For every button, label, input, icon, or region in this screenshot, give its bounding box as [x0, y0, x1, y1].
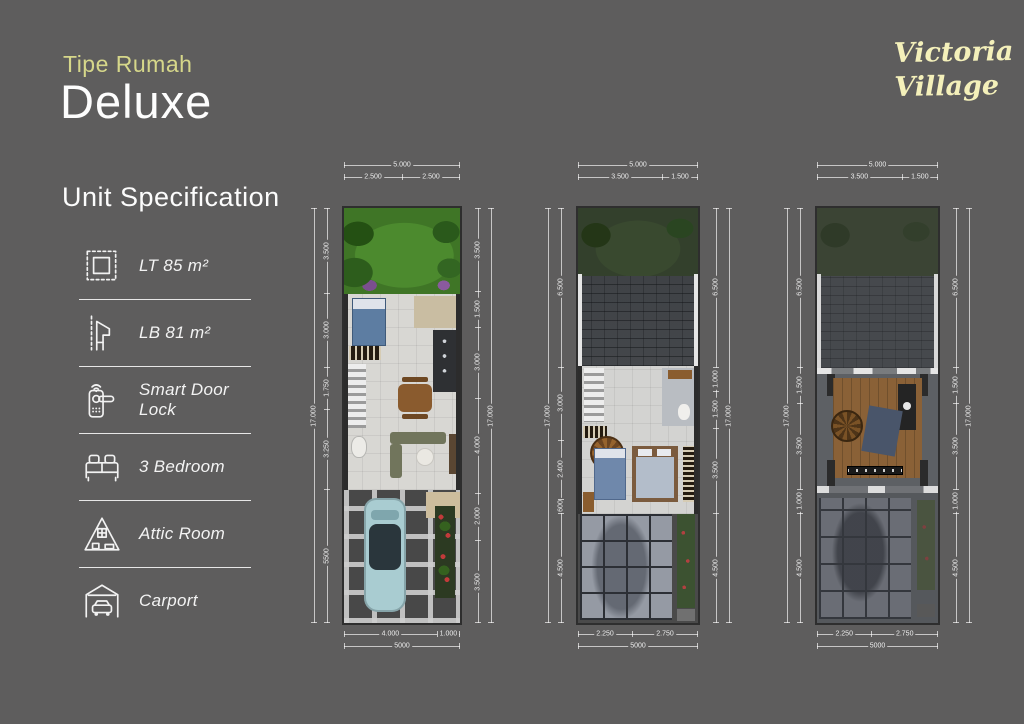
- car: [364, 498, 406, 612]
- planter: [917, 500, 935, 590]
- toilet: [678, 404, 690, 420]
- dim-right-segments: 3.5001.5003.0004.0002.0003.500: [472, 208, 483, 623]
- dim-top-total: 5.000: [578, 160, 698, 170]
- spec-row-building-area: LB 81 m²: [79, 300, 251, 367]
- floor-plan-attic: 5.000 3.5001.500 17.000 6.5001.5003.5001…: [781, 160, 974, 655]
- dim-top-segments: 3.5001.500: [578, 172, 698, 182]
- spec-row-land-area: LT 85 m²: [79, 233, 251, 300]
- brand-line-2: Village: [894, 69, 1014, 105]
- dim-left-total: 17.000: [308, 208, 319, 623]
- dim-top-total: 5.000: [344, 160, 460, 170]
- attic-icon: [79, 513, 125, 555]
- spec-label: Attic Room: [139, 524, 225, 544]
- section-heading: Unit Specification: [62, 182, 280, 213]
- spec-row-carport: Carport: [79, 568, 251, 634]
- garden-dim: [578, 208, 698, 276]
- brand-line-1: Victoria: [893, 35, 1013, 71]
- bed: [352, 298, 386, 346]
- dim-left-segments: 3.5003.0001.7503.2505500: [321, 208, 332, 623]
- dim-bottom-total: 5000: [817, 641, 938, 651]
- staircase: [348, 364, 366, 428]
- dim-bottom-total: 5000: [344, 641, 460, 651]
- spec-row-smart-door-lock: Smart Door Lock: [79, 367, 251, 434]
- toilet: [351, 436, 367, 458]
- ground-floor-rendering: [344, 208, 460, 623]
- spec-label: LB 81 m²: [139, 323, 210, 343]
- land-area-icon: [79, 245, 125, 287]
- staircase: [584, 368, 604, 422]
- garden-dim: [817, 208, 938, 276]
- dim-left-total: 17.000: [781, 208, 792, 623]
- planter: [435, 506, 455, 598]
- spec-row-bedroom: 3 Bedroom: [79, 434, 251, 501]
- dim-top-total: 5.000: [817, 160, 938, 170]
- roof-tiles: [578, 276, 698, 366]
- smart-door-lock-icon: [79, 379, 125, 421]
- dim-right-total: 17.000: [723, 208, 734, 623]
- dining-table: [398, 384, 432, 412]
- dim-right-segments: 6.5001.5003.5001.0004.500: [950, 208, 961, 623]
- wardrobe: [349, 346, 381, 360]
- skylight-grid: [580, 514, 672, 620]
- brand-logo: Victoria Village: [893, 35, 1014, 105]
- spec-list: LT 85 m² LB 81 m²: [79, 233, 251, 634]
- floor-plan-ground: 5.000 2.5002.500 17.000 3.5003.0001.7503…: [308, 160, 496, 655]
- roof-tiles: [817, 276, 938, 368]
- spec-label: 3 Bedroom: [139, 457, 225, 477]
- building-area-icon: [79, 312, 125, 354]
- skylight-grid: [819, 498, 911, 619]
- bed-master: [632, 446, 678, 502]
- spec-row-attic: Attic Room: [79, 501, 251, 568]
- spec-label: Smart Door Lock: [139, 380, 251, 419]
- garden: [344, 208, 460, 294]
- dim-bottom-total: 5000: [578, 641, 698, 651]
- dim-left-segments: 6.5003.0002.4006004.500: [555, 208, 566, 623]
- page-title: Deluxe: [60, 74, 212, 129]
- kitchen-counter: [433, 330, 456, 392]
- wardrobe: [683, 446, 694, 502]
- dim-right-total: 17.000: [485, 208, 496, 623]
- floor-plan-second: 5.000 3.5001.500 17.000 6.5003.0002.4006…: [542, 160, 734, 655]
- dim-bottom-segments: 4.0001.000: [344, 629, 460, 639]
- dim-right-total: 17.000: [963, 208, 974, 623]
- sofa: [390, 432, 446, 444]
- bed-small: [594, 448, 626, 500]
- spec-label: LT 85 m²: [139, 256, 208, 276]
- carport-icon: [79, 580, 125, 622]
- bed-icon: [79, 446, 125, 488]
- attic-floor-rendering: [817, 208, 938, 623]
- dim-top-segments: 2.5002.500: [344, 172, 460, 182]
- dim-bottom-segments: 2.2502.750: [578, 629, 698, 639]
- brochure-page: Tipe Rumah Deluxe Victoria Village Unit …: [0, 0, 1024, 724]
- dim-right-segments: 6.5001.0001.5003.5004.500: [710, 208, 721, 623]
- coffee-table: [416, 448, 434, 466]
- second-floor-rendering: [578, 208, 698, 623]
- planter: [677, 514, 695, 608]
- spiral-stair: [831, 410, 863, 442]
- dim-left-segments: 6.5001.5003.5001.0004.500: [794, 208, 805, 623]
- dim-top-segments: 3.5001.500: [817, 172, 938, 182]
- desk: [898, 384, 916, 430]
- dim-left-total: 17.000: [542, 208, 553, 623]
- spec-label: Carport: [139, 591, 198, 611]
- dim-bottom-segments: 2.2502.750: [817, 629, 938, 639]
